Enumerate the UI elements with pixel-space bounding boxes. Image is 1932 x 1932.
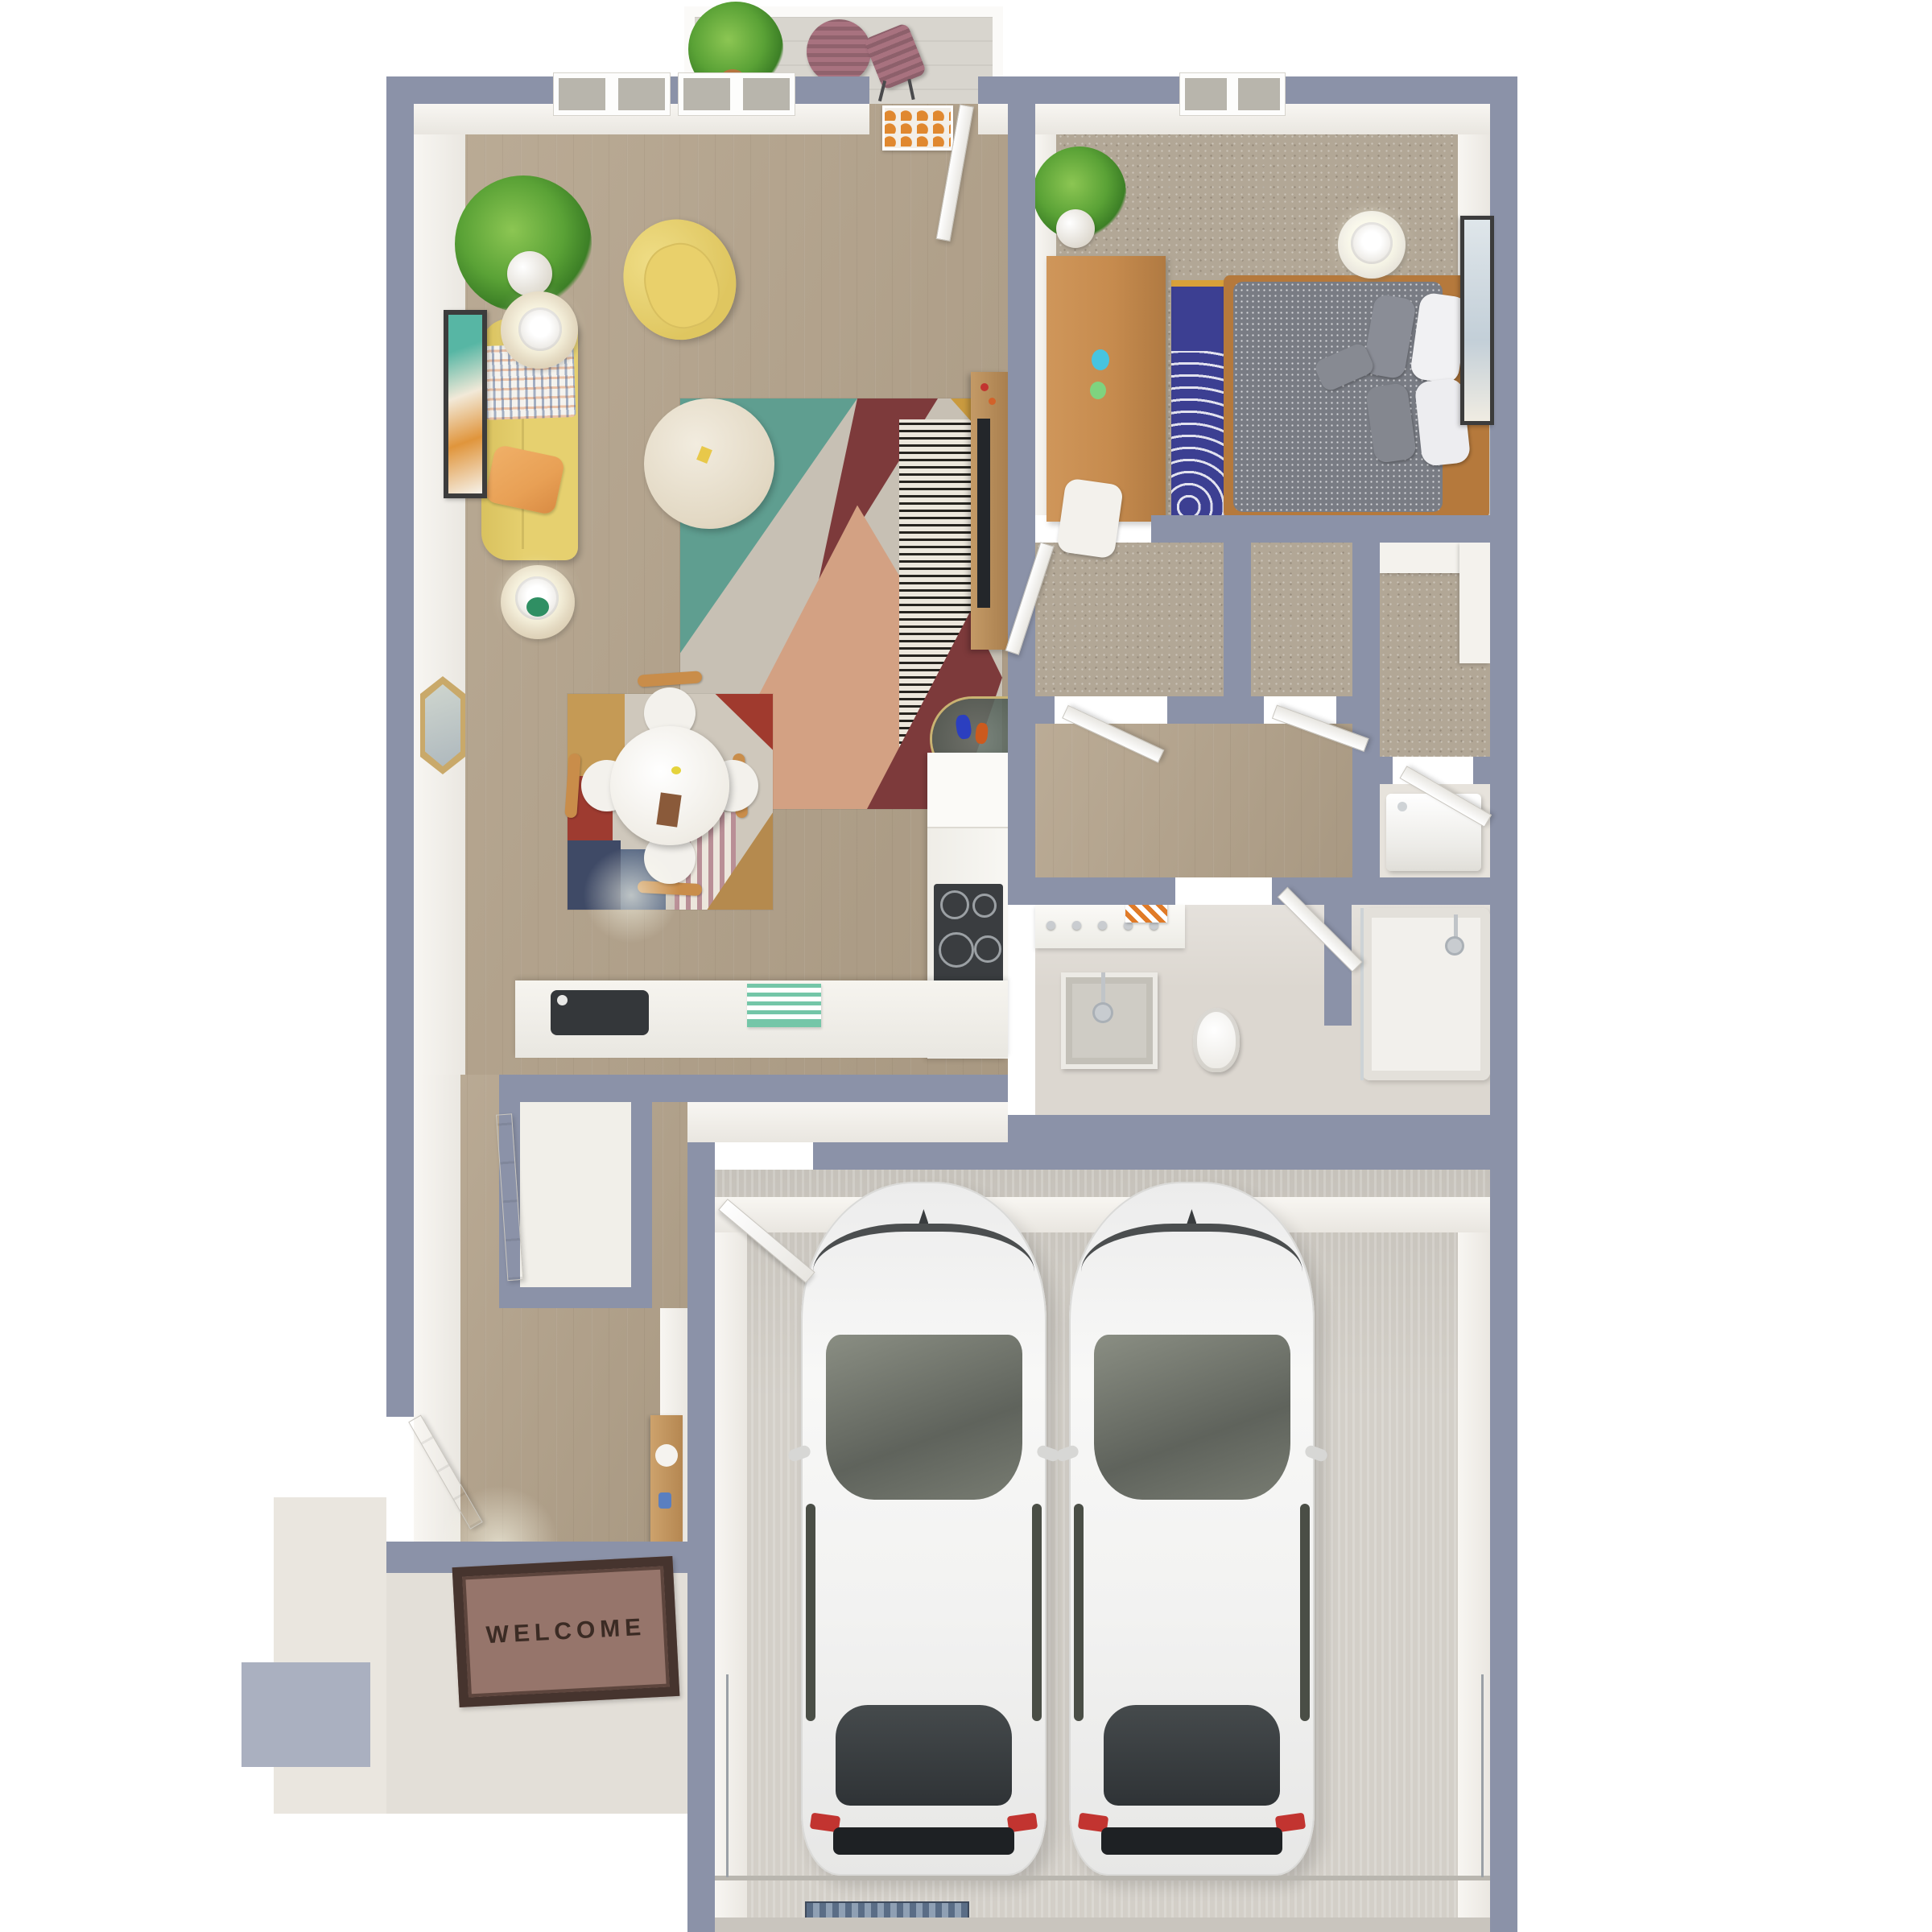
closet-b-floor: [1251, 543, 1352, 696]
wall-closet-ab: [1224, 543, 1251, 696]
wall-closet-b-bottom: [1336, 696, 1380, 724]
tub-shower-arm: [1454, 914, 1458, 942]
garage-door-rail: [715, 1876, 1490, 1880]
hexagon-mirror-glass: [425, 684, 460, 766]
desk-vase-blue: [1092, 349, 1109, 370]
car-side-glass: [806, 1504, 815, 1721]
garage-door-cable: [1481, 1674, 1484, 1877]
car-side-glass: [1074, 1504, 1084, 1721]
desk-chair: [1056, 477, 1124, 559]
stoop-step: [242, 1662, 370, 1767]
car-side-glass: [1032, 1504, 1042, 1721]
entry-wall-art: [882, 105, 953, 151]
wall-closet-b-walkin: [1352, 543, 1380, 757]
wall-bath-top: [1272, 877, 1490, 905]
car-side-glass: [1300, 1504, 1310, 1721]
wall-face: [1458, 1232, 1490, 1932]
living-plant-pot: [507, 251, 552, 296]
wall-face: [715, 1232, 747, 1932]
wall-closet-a-bottom: [1167, 696, 1251, 724]
wall-garage-left: [687, 1142, 715, 1932]
garage-door-cable: [726, 1674, 729, 1877]
wall-right: [1490, 76, 1517, 1932]
burner-icon: [972, 894, 997, 918]
living-window: [679, 73, 795, 115]
car-windshield: [1094, 1335, 1290, 1500]
burner-icon: [974, 935, 1001, 963]
ceiling-light-glow: [583, 847, 679, 943]
candle-icon: [989, 398, 996, 405]
bedroom-desk: [1046, 256, 1166, 522]
bedroom-plant-pot: [1056, 209, 1095, 248]
dining-table: [610, 726, 729, 845]
faucet-knob: [1046, 921, 1055, 930]
bedroom-art-frame: [1460, 216, 1494, 425]
tv: [977, 419, 990, 608]
car-cowl: [813, 1224, 1034, 1288]
kitchen-cabinet: [927, 753, 1008, 828]
wall-walkin-bottom: [1473, 757, 1490, 784]
garage-door-threshold: [715, 1918, 1490, 1932]
car-emblem-icon: [1187, 1209, 1196, 1224]
wall-face: [687, 1102, 1008, 1142]
shower: [1061, 972, 1158, 1069]
wall-bedroom-bottom: [1151, 515, 1490, 543]
burner-icon: [939, 932, 974, 968]
toilet: [1193, 1008, 1240, 1072]
wall-divider: [1008, 76, 1035, 515]
wall-art-frame: [444, 310, 487, 498]
tub-glass: [1360, 908, 1364, 1080]
entry-console: [650, 1415, 683, 1542]
table-lamp: [518, 308, 562, 351]
closet-wall: [499, 1287, 652, 1308]
car-windshield: [826, 1335, 1022, 1500]
welcome-mat-text: WELCOME: [462, 1567, 670, 1698]
shower-arm: [1101, 972, 1105, 1008]
car-bumper: [1101, 1827, 1283, 1855]
dining-board: [656, 792, 681, 827]
burner-icon: [940, 890, 969, 919]
desk-vase-green: [1090, 382, 1106, 399]
car-emblem-icon: [919, 1209, 928, 1224]
faucet-icon: [557, 995, 568, 1005]
faucet-knob: [1072, 921, 1081, 930]
closet-shelf: [1459, 543, 1490, 663]
car-bumper: [833, 1827, 1015, 1855]
floor-plan: WELCOME: [0, 0, 1932, 1932]
wall-bath-top: [1008, 877, 1175, 905]
welcome-mat: WELCOME: [452, 1556, 680, 1707]
candle-icon: [980, 383, 989, 391]
car-right: [1069, 1182, 1315, 1876]
bedroom-window: [1180, 73, 1285, 115]
car-left: [801, 1182, 1046, 1876]
console-plate: [655, 1444, 678, 1467]
wall-walkin-bottom: [1380, 757, 1393, 784]
shower-head-icon: [1095, 1005, 1111, 1021]
tub-shower-head-icon: [1447, 939, 1462, 953]
wall-closet-b-bottom: [1251, 696, 1264, 724]
bathtub: [1362, 908, 1490, 1080]
lamp-tray: [526, 597, 549, 617]
wall-kitchen-bottom: [499, 1075, 1008, 1102]
living-window: [554, 73, 670, 115]
washer-dial: [1397, 802, 1407, 811]
faucet-knob: [1098, 921, 1107, 930]
car-rear-window: [836, 1705, 1013, 1806]
bistro-table: [807, 19, 871, 84]
closet-a-floor: [1035, 543, 1224, 696]
bedroom-lamp: [1351, 222, 1393, 264]
inner-hall-floor: [1035, 724, 1352, 877]
wall-face: [414, 134, 465, 1075]
wall-face: [978, 104, 1008, 134]
wall-garage-top: [813, 1142, 1490, 1170]
car-cowl: [1081, 1224, 1302, 1288]
wall-left: [386, 76, 414, 1417]
coffee-table: [644, 398, 774, 529]
closet-interior: [520, 1087, 631, 1287]
car-rear-window: [1104, 1705, 1281, 1806]
closet-wall: [631, 1087, 652, 1308]
dining-lemon: [671, 766, 681, 774]
wall-closet-a-bottom: [1035, 696, 1055, 724]
counter-art: [747, 984, 821, 1027]
wall-bath-bottom: [1008, 1115, 1517, 1142]
console-item: [658, 1492, 671, 1509]
